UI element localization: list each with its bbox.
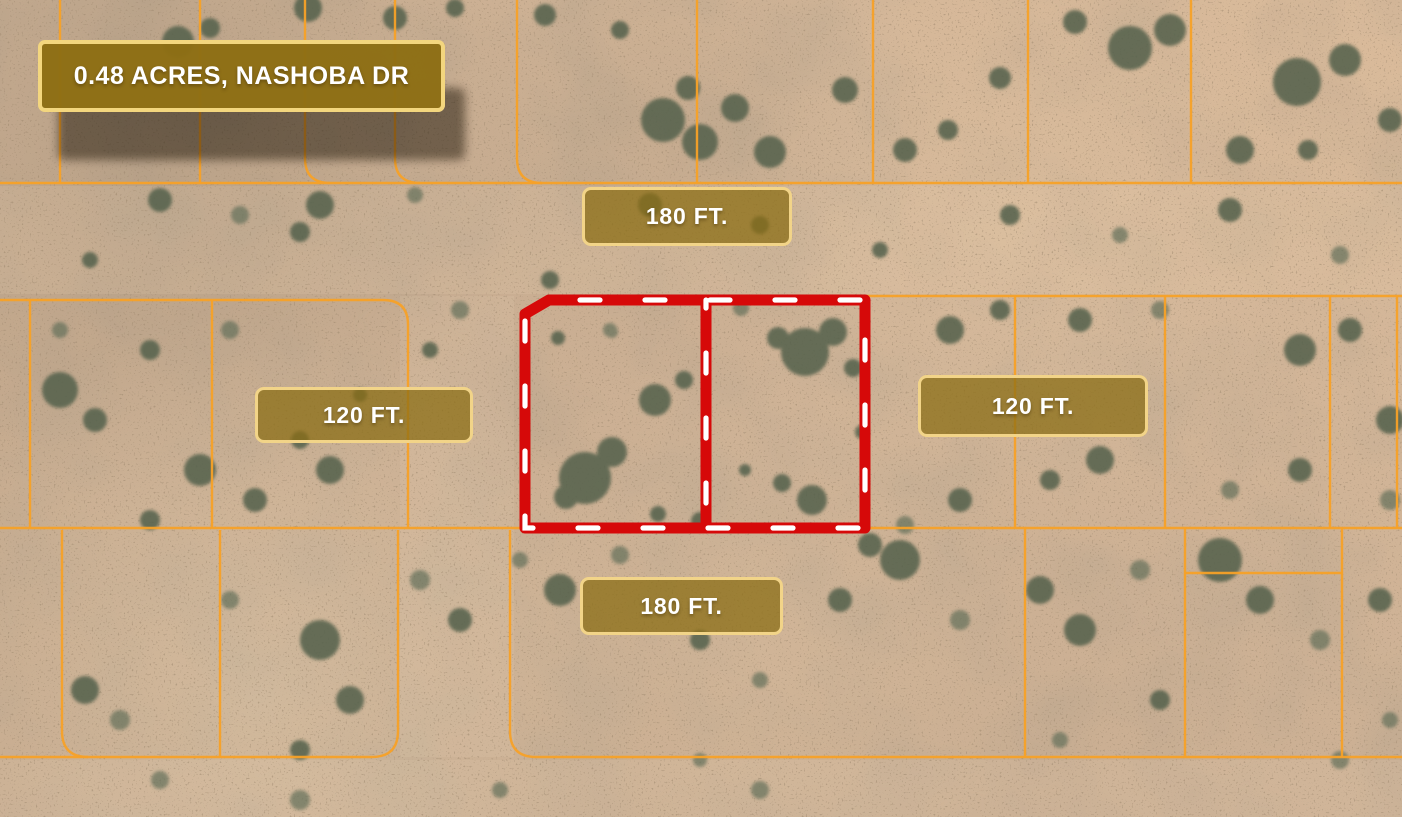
dimension-badge-bottom: 180 FT.	[580, 577, 783, 635]
dimension-label-bottom: 180 FT.	[640, 593, 722, 620]
dimension-label-left: 120 FT.	[323, 402, 405, 429]
property-title-label: 0.48 ACRES, NASHOBA DR	[74, 62, 410, 91]
dimension-label-right: 120 FT.	[992, 393, 1074, 420]
dimension-label-top: 180 FT.	[646, 203, 728, 230]
dimension-badge-right: 120 FT.	[918, 375, 1148, 437]
dimension-badge-top: 180 FT.	[582, 187, 792, 246]
satellite-imagery	[0, 0, 1402, 817]
map-view: 0.48 ACRES, NASHOBA DR 180 FT. 120 FT. 1…	[0, 0, 1402, 817]
property-title-badge: 0.48 ACRES, NASHOBA DR	[38, 40, 445, 112]
dimension-badge-left: 120 FT.	[255, 387, 473, 443]
